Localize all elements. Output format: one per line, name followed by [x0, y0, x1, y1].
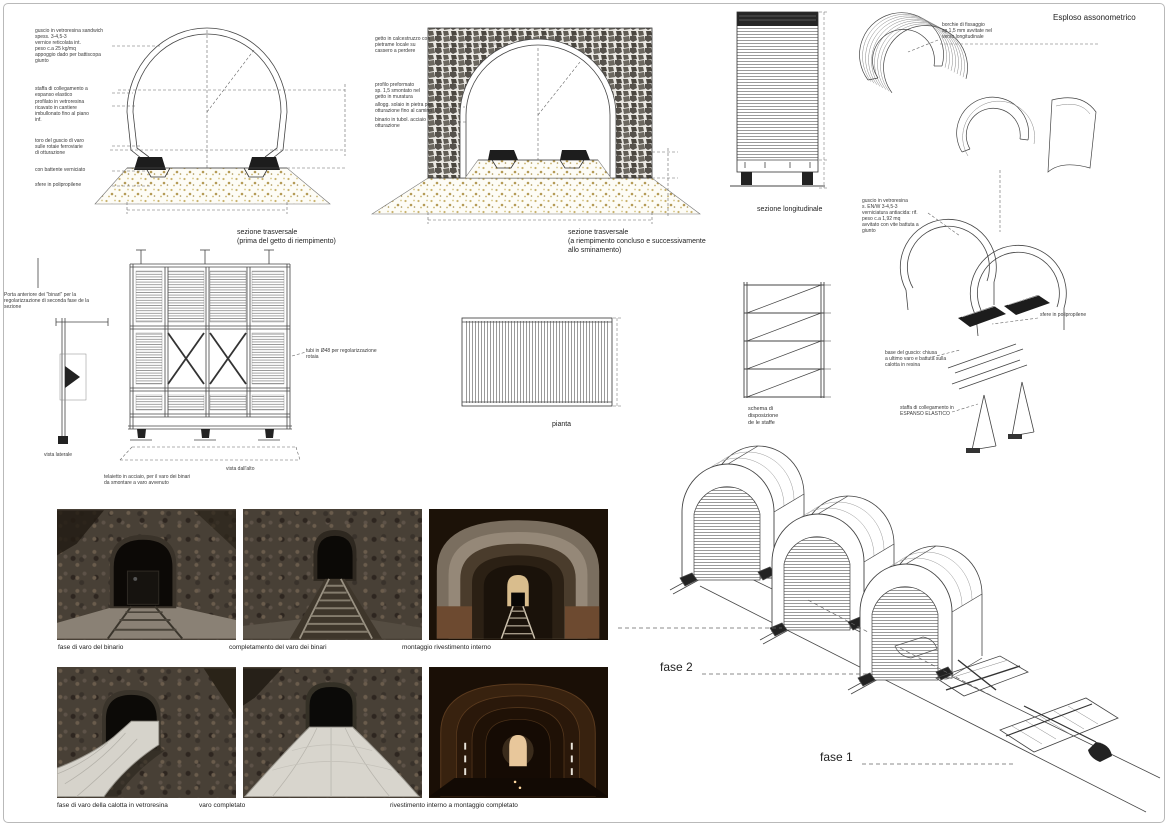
photo-caption-4: fase di varo della calotta in vetroresin…	[57, 802, 168, 809]
label-fase-1: fase 1	[820, 750, 853, 764]
cross-section-1-drawing	[95, 28, 345, 214]
photo-completamento-binari	[243, 509, 422, 640]
caption-longitudinale: sezione longitudinale	[757, 205, 822, 214]
annotation-base: base del guscio: chiusa a ultimo varo e …	[885, 350, 961, 368]
page-title: Esploso assonometrico	[1053, 13, 1136, 22]
phase-axonometric-drawing	[618, 446, 1160, 812]
photo-rivestimento-completato-art	[429, 667, 608, 798]
photo-montaggio-rivestimento	[429, 509, 608, 640]
pianta-drawing	[462, 318, 622, 406]
photo-varo-completato	[243, 667, 422, 798]
annotation-profilo2: profilo preformato sp. 1,5 smontato nel …	[375, 82, 447, 100]
annotation-binario: binario in tubol. acciaio otturazione	[375, 117, 447, 129]
caption-section1: sezione trasversale (prima del getto di …	[237, 228, 336, 246]
annotation-telaietto: telaietto in acciaio, per il varo dei bi…	[104, 474, 234, 486]
photo-montaggio-rivestimento-art	[429, 509, 608, 640]
photo-caption-5: varo completato	[199, 802, 245, 809]
annotation-getto: getto in calcestruzzo con pietrame local…	[375, 36, 447, 54]
photo-varo-completato-art	[243, 667, 422, 798]
label-vista-laterale: vista laterale	[44, 452, 72, 458]
annotation-guscio: guscio in vetroresina s. EN/W 3-4,5-3 ve…	[862, 198, 934, 234]
photo-caption-2: completamento del varo dei binari	[229, 644, 327, 651]
annotation-staffa: staffa di collegamento a espanso elastic…	[35, 86, 113, 98]
photo-varo-calotta-art	[57, 667, 236, 798]
photo-caption-3: montaggio rivestimento interno	[402, 644, 491, 651]
annotation-sfere-2: sfere in polipropilene	[1040, 312, 1110, 318]
caption-pianta: pianta	[552, 420, 571, 429]
exploded-axonometric-mid	[900, 213, 1066, 453]
annotation-toro: toro del guscio di varo sulle rotaie fer…	[35, 138, 113, 156]
photo-rivestimento-completato	[429, 667, 608, 798]
photo-caption-6: rivestimento interno a montaggio complet…	[390, 802, 518, 809]
photo-varo-binario	[57, 509, 236, 640]
label-vista-alto: vista dall'alto	[226, 466, 254, 472]
schema-staffe-drawing	[744, 282, 831, 398]
annotation-profilo: profilato in vetroresina ricavato in can…	[35, 99, 113, 123]
formwork-elevation-drawing	[38, 250, 306, 460]
photo-completamento-binari-art	[243, 509, 422, 640]
annotation-tubi: tubi in Ø48 per regolarizzazione rotaia	[306, 348, 396, 360]
photo-varo-calotta	[57, 667, 236, 798]
annotation-battente: con battente verniciato	[35, 167, 113, 173]
annotation-borchie: borchie di fissaggio sp 1,5 mm avvitate …	[942, 22, 1012, 40]
caption-schema: schema di disposizione de le staffe	[748, 406, 778, 427]
caption-section2: sezione trasversale (a riempimento concl…	[568, 228, 706, 255]
longitudinal-section-drawing	[730, 12, 829, 188]
annotation-porta: Porta anteriore dei "binari" per la rego…	[4, 292, 119, 310]
photo-caption-1: fase di varo del binario	[58, 644, 123, 651]
photo-varo-binario-art	[57, 509, 236, 640]
annotation-alloggio: allogg. solaio in pietra per otturazione…	[375, 102, 447, 114]
label-fase-2: fase 2	[660, 660, 693, 674]
annotation-staffa-esp: staffa di collegamento in ESPANSO ELASTI…	[900, 405, 970, 417]
annotation-sfere-1: sfere in polipropilene	[35, 182, 113, 188]
drawing-sheet: guscio in vetroresina sandwich spess. 3-…	[0, 0, 1170, 836]
annotation-shell: guscio in vetroresina sandwich spess. 3-…	[35, 28, 113, 64]
